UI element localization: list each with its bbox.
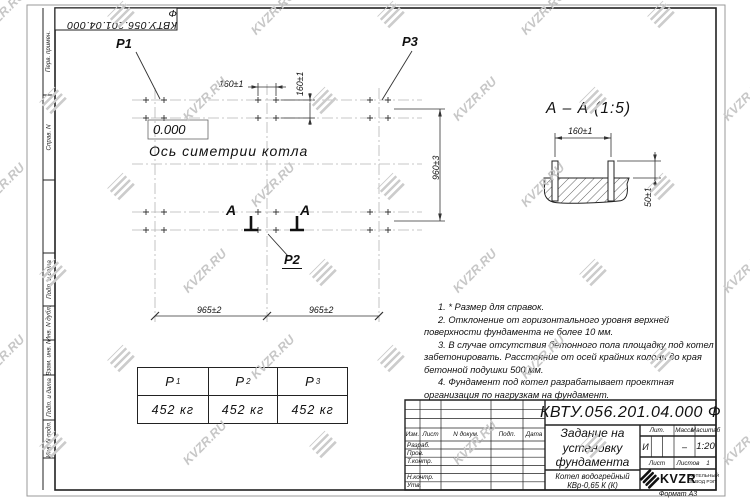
- dim-960-vertical: 960±3: [431, 156, 441, 180]
- sheets-label: Листов: [674, 457, 702, 469]
- sidebar-item-sprav-n: Справ. N: [43, 95, 55, 180]
- anchor-bolt-right: [608, 161, 614, 201]
- col-data: Дата: [523, 429, 545, 440]
- load-table-header-p1: P1: [138, 368, 208, 396]
- section-cut-marks: [244, 216, 304, 230]
- dim-965-right: 965±2: [309, 305, 333, 315]
- row-prov: Пров.: [407, 449, 441, 457]
- section-letter-left: А: [226, 202, 236, 218]
- scale-label: Масштаб: [695, 425, 716, 436]
- drawing-sheet: КВТУ.056.201.04.000 Ф Перв. примен. Спра…: [0, 0, 750, 500]
- doc-title-line: установку: [545, 441, 640, 456]
- section-dim-50: 50±1: [643, 187, 653, 207]
- row-blank: [407, 465, 441, 473]
- sidebar-label: Подп. и дата: [46, 260, 53, 299]
- doc-title-line: Задание на: [545, 426, 640, 441]
- sidebar-label: Инв. N дубл.: [46, 305, 53, 341]
- sidebar-item-podp-data-2: Подп. и дата: [43, 375, 55, 420]
- dim-160-vertical: 160±1: [295, 72, 305, 96]
- sidebar-label: Справ. N: [46, 125, 53, 151]
- p-symbol: P: [235, 374, 244, 389]
- drawing-linework: [0, 0, 750, 500]
- section-view-title: А – А (1:5): [546, 100, 631, 118]
- sidebar-item-inv-podl: Инв. N подл.: [43, 420, 55, 458]
- load-table-value-p1: 452 кг: [138, 396, 208, 423]
- lit-value: И: [640, 436, 651, 457]
- load-point-p3-label: P3: [402, 34, 418, 49]
- row-tkontr: Т.контр.: [407, 457, 441, 465]
- section-letter-right: А: [300, 202, 310, 218]
- lit-label: Лит.: [640, 425, 674, 436]
- format-note: Формат А3: [640, 490, 716, 499]
- col-list: Лист: [420, 429, 441, 440]
- p-symbol: P: [305, 374, 314, 389]
- load-table: P1 P2 P3 452 кг 452 кг 452 кг: [137, 367, 348, 424]
- note-3: 3. В случае отсутствия бетонного пола пл…: [424, 339, 718, 377]
- sidebar-label: Подп. и дата: [46, 378, 53, 417]
- note-2: 2. Отклонение от горизонтального уровня …: [424, 314, 718, 339]
- product-line: Котел водогрейный: [545, 472, 640, 481]
- company-sub-text: КОТЕЛЬНЫЙ ЗАВОД РЭП: [689, 474, 719, 486]
- col-podp: Подп.: [491, 429, 523, 440]
- row-razrab: Разраб.: [407, 441, 441, 449]
- sidebar-label: Инв. N подл.: [46, 421, 53, 457]
- col-n-dokum: N докум.: [441, 429, 491, 440]
- title-block-doc-number: КВТУ.056.201.04.000 Ф: [545, 400, 716, 425]
- dim-965-left: 965±2: [197, 305, 221, 315]
- p-subscript: 1: [176, 377, 180, 386]
- company-sub-line: ЗАВОД РЭП: [689, 480, 719, 486]
- load-table-value-p2: 452 кг: [208, 396, 278, 423]
- boiler-symmetry-axis-label: Ось симетрии котла: [149, 143, 308, 159]
- sidebar-item-perv-primen: Перв. примен.: [43, 8, 55, 95]
- product-line: КВр-0,65 К (К): [545, 481, 640, 490]
- p-symbol: P: [165, 374, 174, 389]
- doc-title-line: фундамента: [545, 455, 640, 470]
- p-subscript: 2: [246, 377, 250, 386]
- sheet-label: Лист: [640, 457, 674, 469]
- col-izm: Изм.: [405, 429, 420, 440]
- dim-160-horizontal: 160±1: [219, 79, 243, 89]
- note-1: 1. * Размер для справок.: [424, 301, 718, 314]
- sidebar-label: Взам. инв. N: [46, 339, 53, 375]
- note-4: 4. Фундамент под котел разрабатывает про…: [424, 376, 718, 401]
- company-sub-line: КОТЕЛЬНЫЙ: [689, 474, 719, 480]
- load-table-value-p3: 452 кг: [277, 396, 347, 423]
- section-dim-160: 160±1: [568, 126, 592, 136]
- load-table-header-p2: P2: [208, 368, 278, 396]
- sheets-value: 1: [700, 457, 716, 469]
- scale-value: 1:20: [695, 436, 716, 457]
- title-block-product: Котел водогрейный КВр-0,65 К (К): [545, 472, 640, 490]
- anchor-bolt-left: [552, 161, 558, 201]
- sidebar-label: Перв. примен.: [46, 31, 53, 72]
- sidebar-item-vzam-inv: Взам. инв. N: [43, 340, 55, 375]
- load-table-header-p3: P3: [277, 368, 347, 396]
- row-nkontr: Н.контр.: [407, 474, 441, 482]
- top-stamp-doc-number: КВТУ.056.201.04.000 Ф: [55, 8, 177, 30]
- sidebar-item-inv-dubl: Инв. N дубл.: [43, 306, 55, 340]
- load-point-p2-label: P2: [282, 252, 302, 269]
- title-block-doc-title: Задание на установку фундамента: [545, 426, 640, 470]
- notes-block: 1. * Размер для справок. 2. Отклонение о…: [424, 301, 718, 401]
- elevation-mark: 0.000: [153, 122, 186, 137]
- row-utv: Утв.: [407, 482, 441, 490]
- kvzr-logo-icon: [639, 469, 660, 490]
- plan-dimensions: [151, 83, 445, 320]
- p-subscript: 3: [316, 377, 320, 386]
- sidebar-item-podp-data-1: Подп. и дата: [43, 253, 55, 306]
- load-point-p1-label: P1: [116, 36, 132, 51]
- mass-value: –: [674, 436, 695, 457]
